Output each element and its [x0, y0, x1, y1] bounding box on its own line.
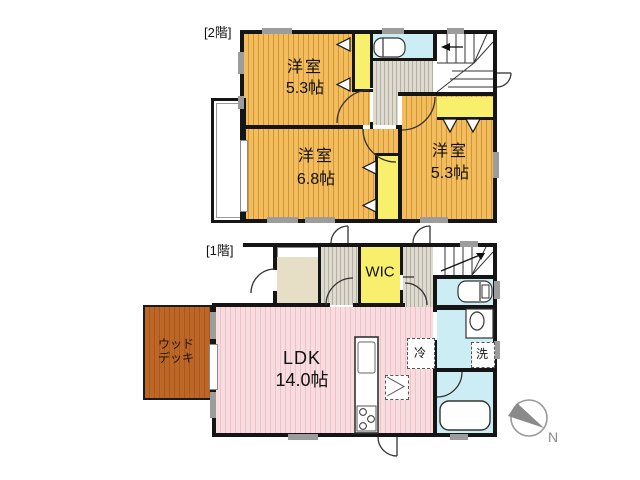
window — [210, 392, 216, 418]
wall — [375, 156, 378, 219]
room-2f-bedroom-c-name: 洋室 — [432, 144, 468, 160]
room-2f-bedroom-a-name: 洋室 — [287, 60, 323, 76]
window — [460, 241, 478, 247]
toilet-1f-floor — [437, 279, 493, 305]
wall — [493, 243, 497, 437]
hallway-1f-floor — [321, 247, 358, 305]
compass-north-label: N — [548, 430, 558, 444]
wood-deck-label-line2: デッキ — [158, 352, 194, 364]
wall — [437, 368, 497, 372]
wall — [318, 245, 321, 305]
room-2f-bedroom-b-size: 6.8帖 — [297, 172, 335, 188]
wall — [244, 125, 363, 129]
closet-2f-c — [378, 156, 398, 219]
window — [493, 152, 499, 178]
wall — [400, 245, 403, 275]
toilet-2f-floor — [373, 34, 433, 58]
wall — [358, 245, 361, 307]
wall — [212, 303, 330, 307]
stairs-2f-floor — [437, 34, 493, 92]
floor2-label: [2階] — [204, 26, 231, 39]
window — [262, 28, 292, 34]
wood-deck-label-line1: ウッド — [158, 338, 194, 350]
floor1-label: [1階] — [206, 244, 233, 257]
window — [210, 312, 216, 339]
floorplan-canvas: [2階] 洋室 5.3帖 洋室 6.8帖 洋室 5.3帖 [1階] WIC LD… — [0, 0, 640, 480]
window — [494, 281, 500, 299]
cupboard-box — [385, 375, 409, 400]
window — [305, 217, 335, 223]
washer-label: 洗 — [476, 348, 488, 360]
wic-label: WIC — [365, 265, 394, 280]
wall — [370, 122, 373, 129]
bathroom-floor — [437, 372, 493, 433]
deck-sliding-door — [209, 344, 218, 390]
wall — [273, 243, 277, 270]
window — [447, 28, 464, 34]
window — [450, 434, 468, 440]
window — [267, 217, 298, 223]
room-2f-bedroom-a-size: 5.3帖 — [286, 81, 324, 97]
window — [420, 217, 448, 223]
balcony-sliding-door — [240, 140, 248, 212]
wall — [243, 243, 497, 247]
compass-icon — [508, 400, 547, 436]
balcony-railing — [216, 103, 241, 218]
ldk-name: LDK — [283, 349, 321, 367]
wall — [352, 34, 355, 89]
wall — [493, 30, 497, 223]
wall — [398, 92, 493, 96]
window — [238, 52, 244, 74]
wall — [437, 305, 497, 310]
hall-2f-floor-lower — [373, 92, 398, 125]
wall — [352, 89, 373, 92]
wall — [398, 126, 402, 219]
window — [288, 434, 318, 440]
refrigerator-label: 冷 — [414, 347, 426, 359]
wall — [375, 153, 401, 156]
wall — [437, 117, 493, 120]
wall — [370, 34, 373, 88]
hall-2f-floor — [373, 61, 433, 92]
room-2f-bedroom-b-name: 洋室 — [298, 149, 334, 165]
wall — [373, 58, 433, 61]
hall2-1f-floor — [403, 247, 433, 307]
room-2f-bedroom-c-size: 5.3帖 — [431, 166, 469, 182]
window — [382, 28, 404, 34]
entry-genkan-floor — [277, 257, 318, 305]
window — [238, 96, 244, 109]
wall — [400, 290, 403, 307]
ldk-size: 14.0帖 — [275, 371, 328, 389]
closet-2f-b — [437, 97, 493, 117]
wall — [433, 34, 437, 61]
stairs-1f-floor — [437, 247, 493, 275]
wall — [435, 275, 493, 279]
